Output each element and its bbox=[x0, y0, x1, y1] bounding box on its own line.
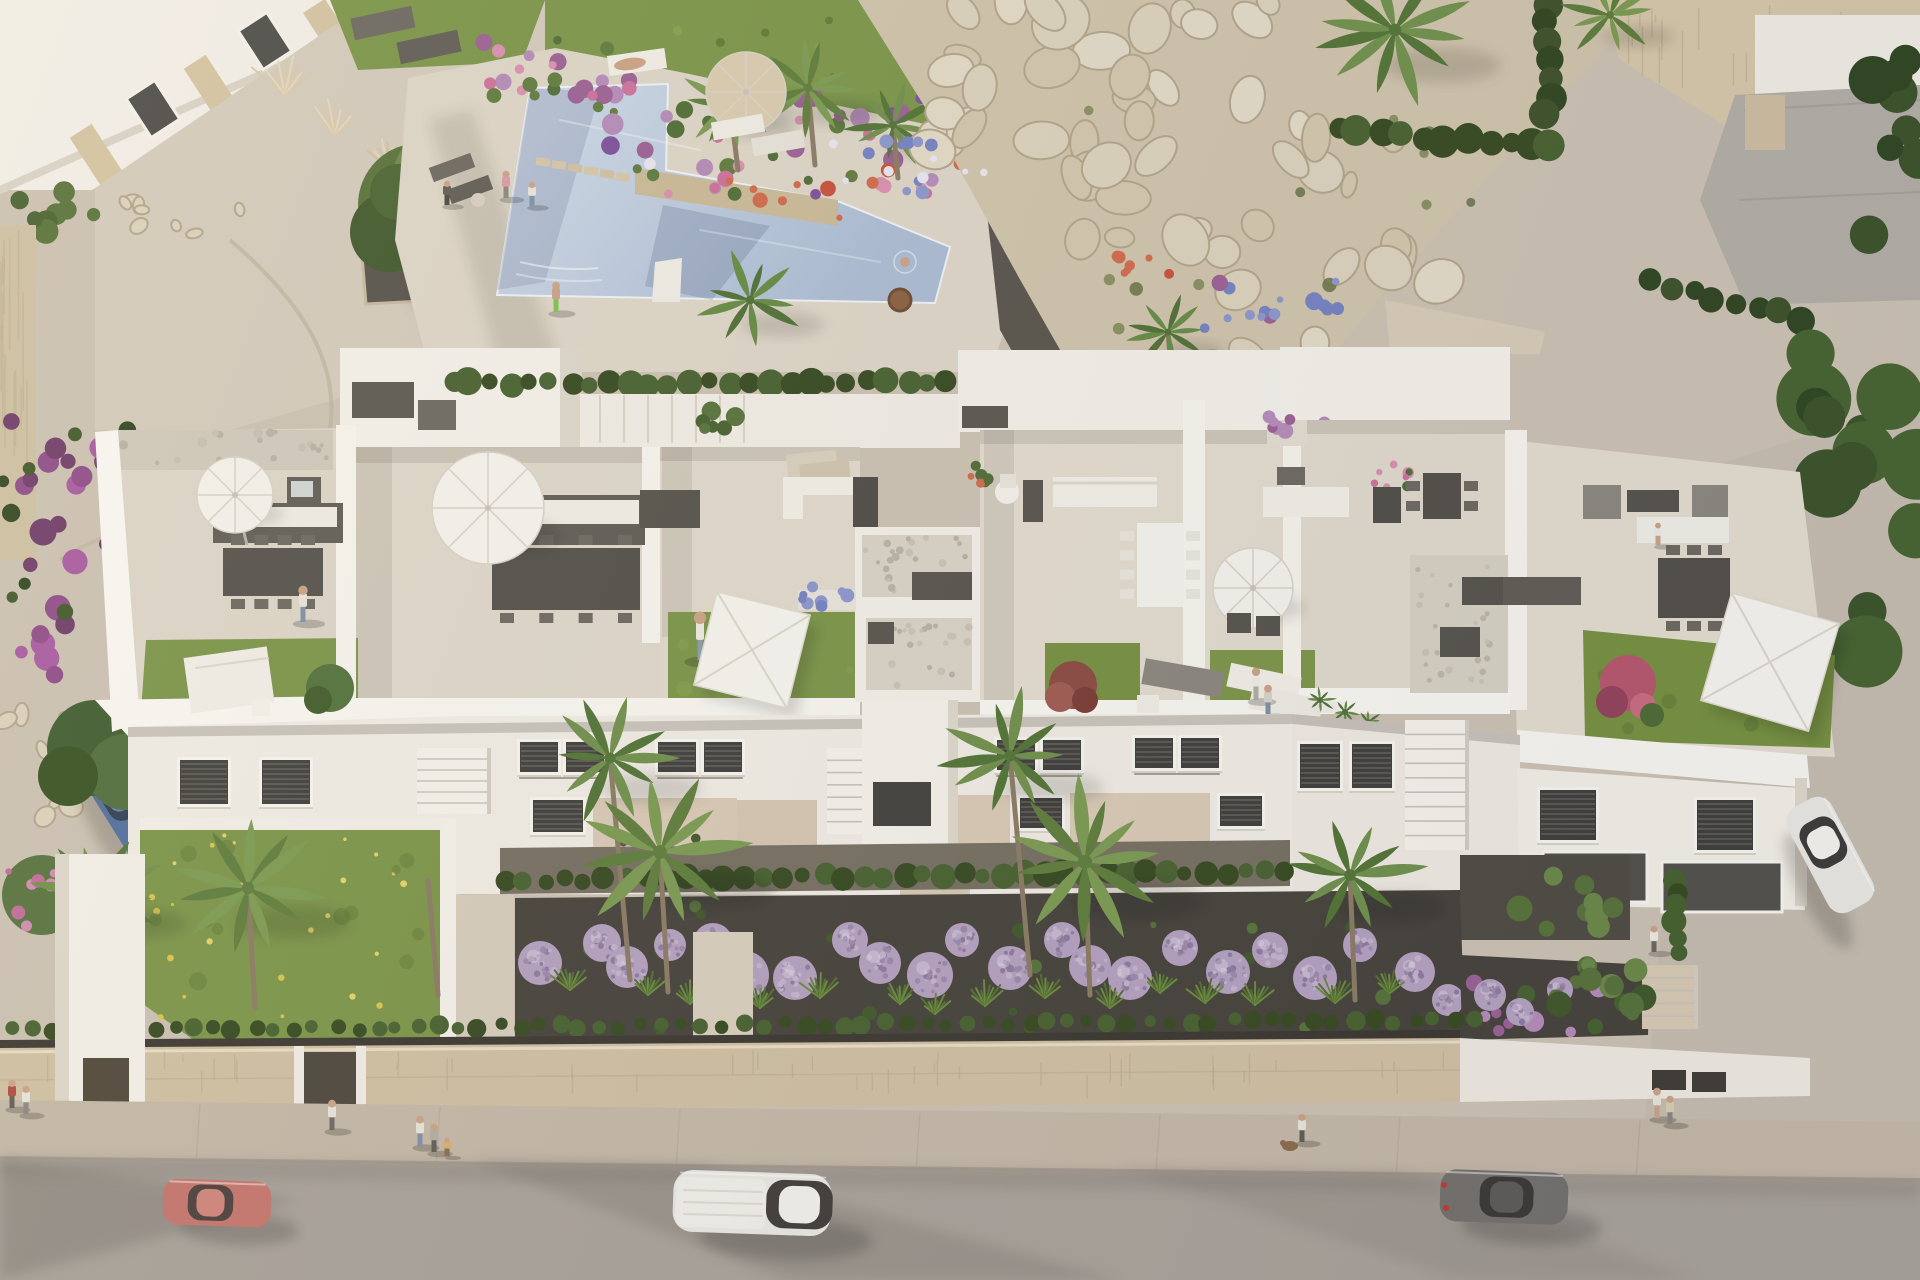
layer-light-overlay bbox=[0, 0, 1920, 1280]
sunlight-overlay bbox=[0, 0, 1920, 1280]
scene-root bbox=[0, 0, 1920, 1280]
scene-svg bbox=[0, 0, 1920, 1280]
aerial-architectural-render bbox=[0, 0, 1920, 1280]
